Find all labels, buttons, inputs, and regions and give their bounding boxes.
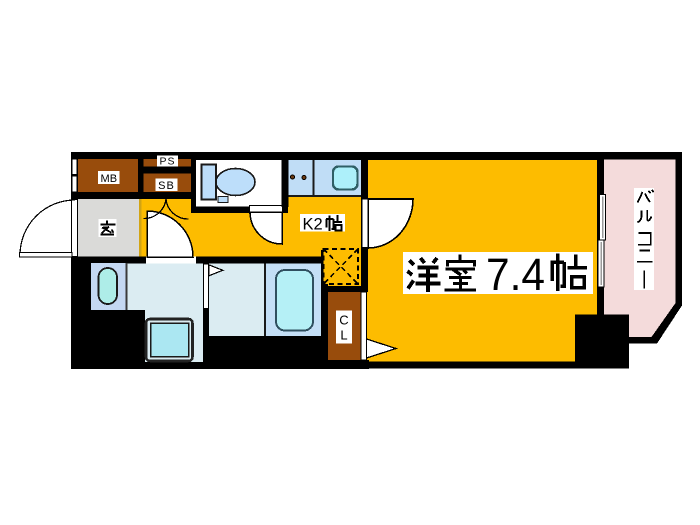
svg-text:7.4: 7.4 (486, 249, 545, 300)
svg-text:PS: PS (159, 156, 175, 168)
svg-text:K2: K2 (303, 216, 323, 234)
svg-text:C: C (339, 313, 348, 328)
svg-text:L: L (340, 328, 347, 343)
svg-text:MB: MB (101, 173, 118, 185)
svg-text:SB: SB (158, 180, 175, 192)
